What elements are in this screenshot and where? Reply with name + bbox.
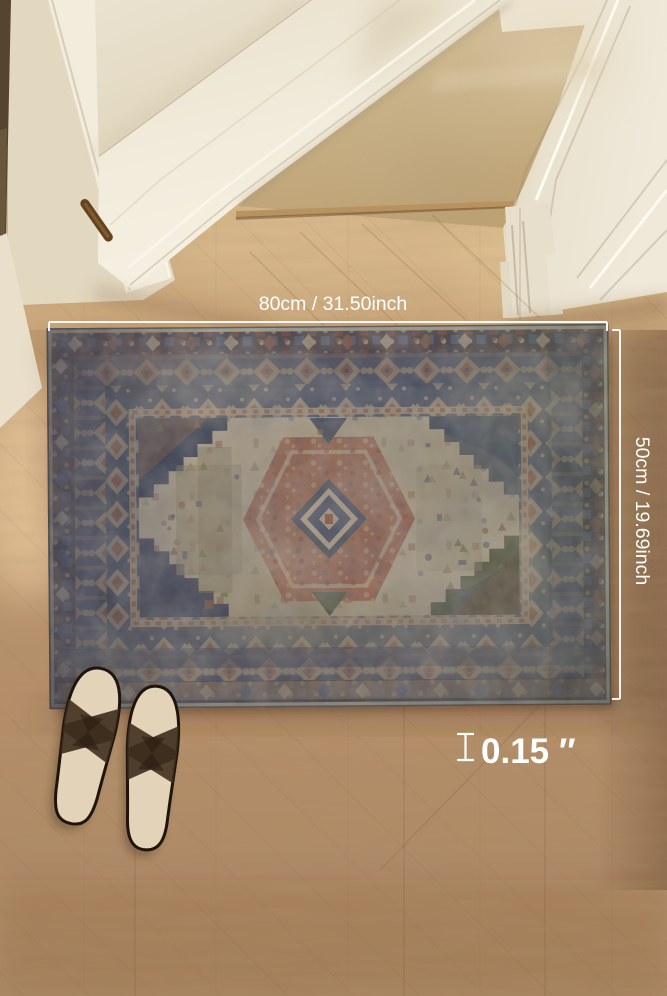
svg-text:50cm / 19.69inch: 50cm / 19.69inch xyxy=(631,437,653,586)
svg-text:80cm / 31.50inch: 80cm / 31.50inch xyxy=(259,293,408,315)
svg-text:0.15 ″: 0.15 ″ xyxy=(481,732,576,771)
